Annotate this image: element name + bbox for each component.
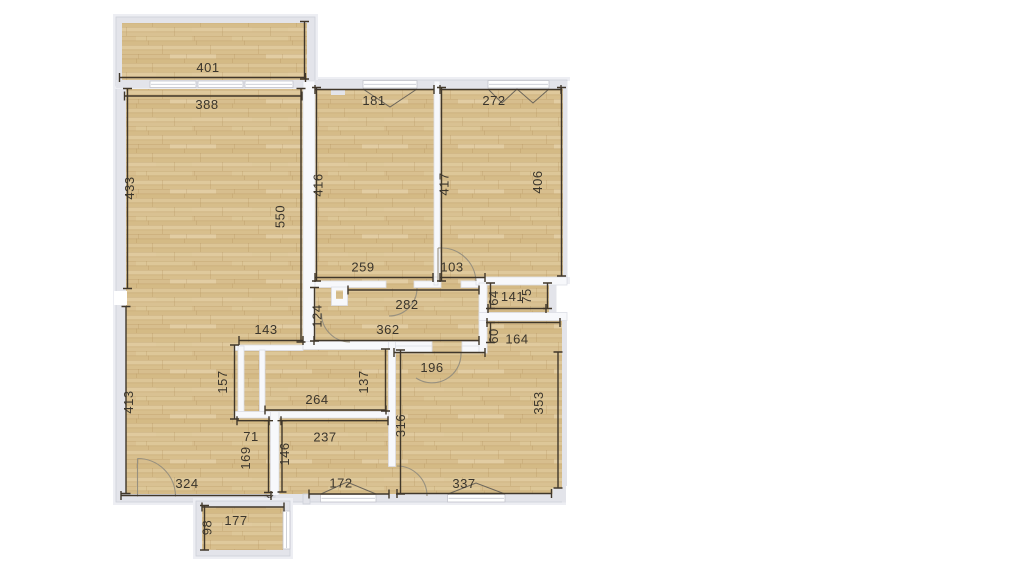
svg-text:316: 316: [393, 414, 408, 437]
svg-text:417: 417: [437, 172, 452, 195]
svg-text:103: 103: [440, 260, 463, 275]
svg-text:157: 157: [215, 370, 230, 393]
svg-text:98: 98: [200, 520, 215, 535]
svg-text:71: 71: [243, 429, 258, 444]
svg-text:406: 406: [530, 170, 545, 193]
svg-text:237: 237: [313, 430, 336, 445]
svg-text:353: 353: [531, 391, 546, 414]
svg-text:172: 172: [329, 476, 352, 491]
svg-text:401: 401: [196, 60, 219, 75]
svg-text:282: 282: [395, 297, 418, 312]
svg-text:388: 388: [195, 97, 218, 112]
svg-text:416: 416: [311, 173, 326, 196]
svg-text:413: 413: [121, 390, 136, 413]
svg-text:146: 146: [277, 442, 292, 465]
svg-text:169: 169: [238, 446, 253, 469]
svg-text:124: 124: [310, 304, 325, 327]
svg-text:177: 177: [224, 513, 247, 528]
svg-text:272: 272: [482, 93, 505, 108]
svg-text:164: 164: [505, 332, 528, 347]
svg-text:64: 64: [486, 290, 501, 305]
svg-text:337: 337: [452, 476, 475, 491]
svg-text:362: 362: [376, 322, 399, 337]
svg-text:196: 196: [420, 360, 443, 375]
svg-text:259: 259: [351, 260, 374, 275]
svg-text:60: 60: [486, 328, 501, 343]
svg-text:550: 550: [273, 205, 288, 228]
svg-text:143: 143: [254, 322, 277, 337]
svg-text:433: 433: [122, 176, 137, 199]
svg-text:324: 324: [175, 476, 198, 491]
svg-text:264: 264: [305, 392, 328, 407]
svg-text:181: 181: [362, 93, 385, 108]
svg-text:75: 75: [519, 288, 534, 303]
svg-text:137: 137: [356, 370, 371, 393]
